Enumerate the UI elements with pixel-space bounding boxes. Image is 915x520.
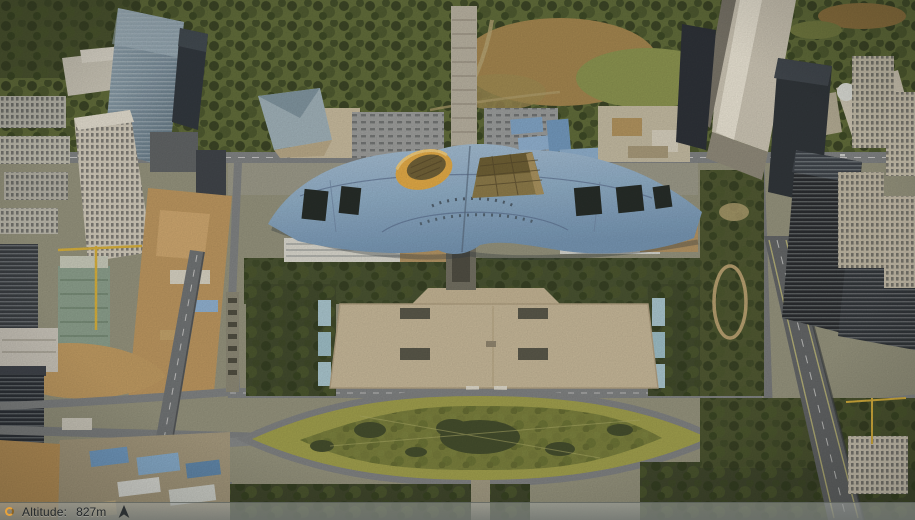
altitude-label: Altitude: bbox=[22, 505, 67, 519]
altitude-value: 827m bbox=[76, 505, 106, 519]
loading-spinner-icon bbox=[5, 507, 14, 516]
aerial-scene bbox=[0, 0, 915, 520]
map-viewport[interactable]: Altitude: 827m bbox=[0, 0, 915, 520]
compass-north-icon[interactable] bbox=[118, 505, 130, 518]
vignette-overlay bbox=[0, 0, 915, 520]
status-bar: Altitude: 827m bbox=[0, 502, 915, 520]
